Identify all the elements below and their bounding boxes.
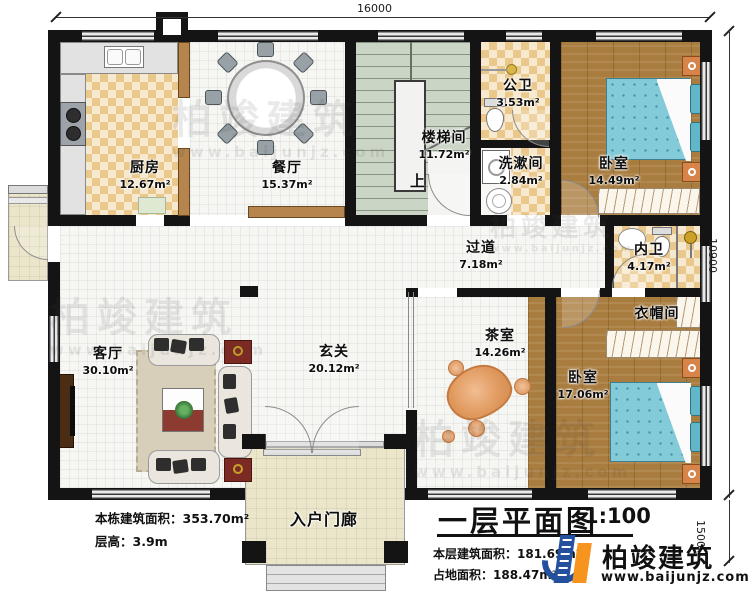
- sofa-cushion: [189, 338, 204, 351]
- plant: [175, 401, 193, 419]
- bed-sheet-fold: [657, 383, 691, 463]
- porch-post: [242, 541, 266, 563]
- foyer-label: 玄关 20.12m²: [308, 344, 359, 375]
- window: [49, 316, 59, 362]
- window: [92, 489, 210, 499]
- wall: [545, 215, 561, 226]
- floor-plan-page: 厨房 12.67m² 餐厅 15.37m² 楼梯间 11.72m² 上 公卫 3…: [0, 0, 750, 601]
- dimension-line-top: [55, 17, 710, 18]
- sofa-cushion: [223, 424, 236, 439]
- brand-logo-icon: [542, 533, 598, 591]
- coffee-table: [162, 388, 204, 432]
- total-area-note: 本栋建筑面积：353.70m²: [95, 508, 249, 527]
- dining-chair: [257, 140, 274, 155]
- shower-head: [684, 231, 697, 244]
- dining-table: [227, 60, 305, 136]
- dim-width: 16000: [357, 2, 392, 15]
- nightstand: [682, 56, 702, 76]
- sliding-door: [408, 292, 414, 408]
- room-area: 15.37m²: [261, 178, 312, 192]
- tea-room-wood-strip: [528, 297, 545, 488]
- room-area: 3.53m²: [496, 96, 539, 110]
- wall: [164, 215, 190, 226]
- room-name: 玄关: [308, 344, 359, 362]
- room-area: 7.18m²: [459, 258, 502, 272]
- door-jamb: [178, 148, 190, 216]
- wall: [645, 288, 700, 297]
- tea-cushion: [448, 360, 464, 376]
- room-area: 2.84m²: [499, 174, 544, 188]
- title-underline: [437, 534, 633, 537]
- cloakroom-rack: [606, 330, 704, 358]
- stove-burner: [66, 108, 81, 123]
- porch-post: [242, 434, 266, 449]
- wall: [48, 30, 60, 226]
- porch-steps: [266, 565, 386, 591]
- bed: [610, 382, 690, 462]
- wall: [48, 262, 60, 488]
- dining-chair: [257, 42, 274, 57]
- ensuite-toilet-tank: [652, 227, 672, 235]
- room-name: 内卫: [627, 242, 670, 260]
- wall: [470, 30, 481, 226]
- dining-chair: [310, 90, 327, 105]
- window: [218, 31, 318, 41]
- wall: [60, 215, 136, 226]
- public-bath-label: 公卫 3.53m²: [496, 78, 539, 109]
- side-table: [224, 340, 252, 364]
- tea-cushion: [468, 420, 485, 437]
- sofa-cushion: [170, 339, 187, 354]
- dim-depth: 10900: [706, 238, 719, 273]
- sink-bowl: [107, 49, 123, 65]
- window: [82, 31, 154, 41]
- wall-stub: [240, 286, 258, 297]
- room-name: 公卫: [496, 78, 539, 96]
- ensuite-bath-label: 内卫 4.17m²: [627, 242, 670, 273]
- corridor-label: 过道 7.18m²: [459, 240, 502, 271]
- sofa-cushion: [191, 458, 206, 471]
- bedroom-bottom-label: 卧室 17.06m²: [557, 370, 608, 401]
- side-table-medallion: [233, 346, 243, 356]
- room-area: 14.49m²: [588, 174, 639, 188]
- room-area: 14.26m²: [474, 346, 525, 360]
- sofa-cushion: [154, 338, 169, 351]
- dining-sideboard: [248, 206, 345, 218]
- room-area: 30.10m²: [82, 364, 133, 378]
- closet-rack: [598, 188, 700, 214]
- side-table-medallion: [233, 464, 243, 474]
- brand-website: www.baijunjz.com: [601, 570, 750, 585]
- bedroom-top-label: 卧室 14.49m²: [588, 156, 639, 187]
- nightstand: [682, 464, 702, 484]
- ceiling-light: [506, 64, 517, 75]
- side-table: [224, 458, 252, 482]
- dining-chair: [205, 90, 222, 105]
- sofa-cushion: [172, 459, 189, 474]
- window: [701, 62, 711, 140]
- wall: [550, 30, 561, 226]
- dimension-line-porch: [729, 500, 730, 563]
- shower-stem: [690, 244, 692, 258]
- nightstand-lamp: [688, 62, 696, 70]
- tea-room-label: 茶室 14.26m²: [474, 328, 525, 359]
- kitchen-stove: [60, 102, 86, 146]
- sofa-cushion: [156, 458, 171, 471]
- tea-cushion: [514, 378, 531, 395]
- sofa-cushion: [223, 374, 236, 389]
- wall: [406, 410, 417, 488]
- window: [701, 386, 711, 466]
- room-area: 4.17m²: [627, 260, 670, 274]
- room-name: 入户门廊: [290, 510, 358, 530]
- floor-height-note: 层高：3.9m: [95, 531, 168, 550]
- room-name: 楼梯间: [418, 130, 469, 148]
- room-area: 17.06m²: [557, 388, 608, 402]
- porch-post: [384, 541, 408, 563]
- room-area: 12.67m²: [119, 178, 170, 192]
- washroom-basin: [486, 188, 512, 214]
- cloakroom-rack: [676, 296, 702, 328]
- living-room-label: 客厅 30.10m²: [82, 346, 133, 377]
- window: [378, 31, 464, 41]
- kitchen-door-mat: [138, 197, 166, 214]
- bed: [606, 78, 690, 160]
- room-area: 11.72m²: [418, 148, 469, 162]
- entry-porch-floor: [245, 447, 405, 565]
- wall: [345, 215, 427, 226]
- room-name: 过道: [459, 240, 502, 258]
- kitchen-sink: [104, 46, 144, 68]
- room-name: 卧室: [557, 370, 608, 388]
- room-name: 客厅: [82, 346, 133, 364]
- wall: [545, 288, 556, 488]
- dimension-line-right: [729, 32, 730, 498]
- nightstand-lamp: [688, 470, 696, 478]
- light-cord: [481, 69, 507, 71]
- sofa-cushion: [224, 397, 239, 414]
- nightstand: [682, 162, 702, 182]
- wall: [345, 30, 356, 226]
- dining-label: 餐厅 15.37m²: [261, 160, 312, 191]
- corridor-floor: [417, 226, 605, 288]
- room-name: 衣帽间: [635, 306, 680, 324]
- nightstand: [682, 358, 702, 378]
- porch-post: [384, 434, 408, 449]
- wall: [470, 215, 507, 226]
- washroom-label: 洗漱间 2.84m²: [499, 156, 544, 187]
- shower-glass: [676, 226, 678, 288]
- side-porch-window-band: [8, 185, 48, 194]
- tv-screen: [70, 386, 75, 436]
- stove-burner: [66, 126, 81, 141]
- bed-sheet-fold: [657, 79, 691, 161]
- nightstand-lamp: [688, 364, 696, 372]
- nightstand-lamp: [688, 168, 696, 176]
- room-name: 餐厅: [261, 160, 312, 178]
- door-jamb: [178, 42, 190, 98]
- wall: [600, 215, 712, 226]
- window: [506, 31, 542, 41]
- tea-cushion: [442, 430, 455, 443]
- cloakroom-label: 衣帽间: [635, 306, 680, 324]
- room-name: 厨房: [119, 160, 170, 178]
- side-porch-window-band: [8, 197, 48, 204]
- basin-inner: [492, 194, 506, 208]
- wall: [600, 288, 612, 297]
- porch-label: 入户门廊: [290, 510, 358, 530]
- stairwell-label: 楼梯间 11.72m²: [418, 130, 469, 161]
- stair-up-label: 上: [410, 170, 425, 191]
- logo-windows: [557, 539, 572, 579]
- room-area: 20.12m²: [308, 362, 359, 376]
- sink-bowl: [125, 49, 141, 65]
- room-name: 茶室: [474, 328, 525, 346]
- room-name: 洗漱间: [499, 156, 544, 174]
- window: [596, 31, 682, 41]
- footprint-area-note: 占地面积：188.47m²: [433, 566, 557, 583]
- window: [588, 489, 676, 499]
- plan-scale: 1:100: [584, 504, 651, 528]
- kitchen-label: 厨房 12.67m²: [119, 160, 170, 191]
- room-name: 卧室: [588, 156, 639, 174]
